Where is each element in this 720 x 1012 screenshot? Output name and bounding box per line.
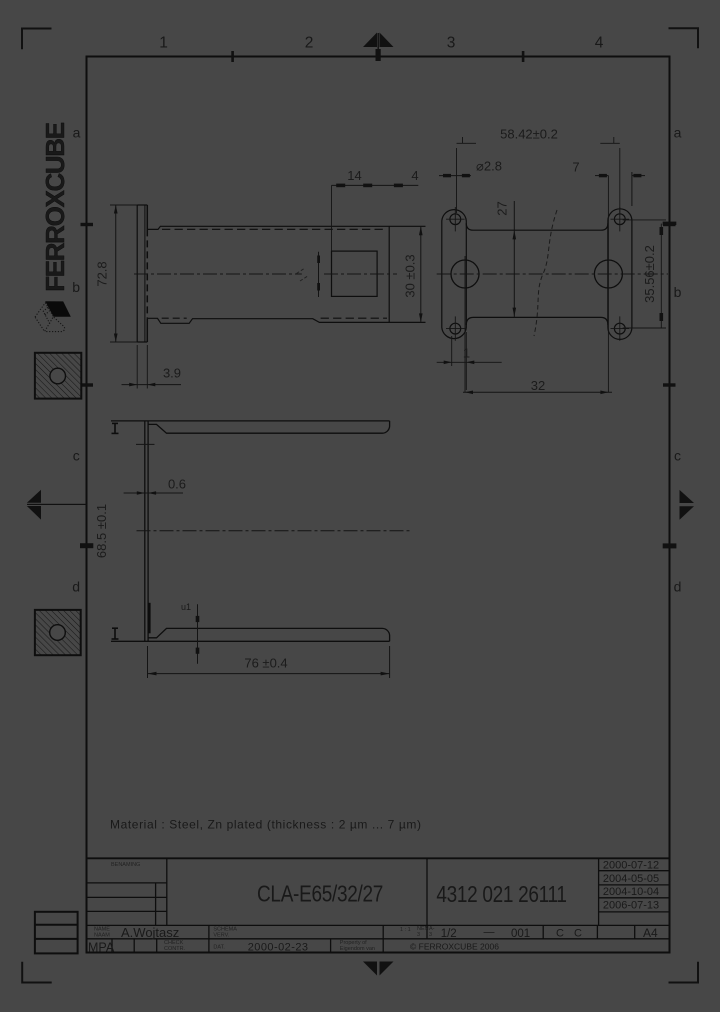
svg-text:A4: A4 <box>643 926 658 940</box>
svg-text:1: 1 <box>159 35 168 52</box>
svg-text:2004-10-04: 2004-10-04 <box>603 886 659 898</box>
svg-text:A.Wojtasz: A.Wojtasz <box>121 925 179 940</box>
svg-text:7: 7 <box>572 160 579 175</box>
svg-text:© FERROXCUBE 2006: © FERROXCUBE 2006 <box>410 942 499 952</box>
svg-text:76 ±0.4: 76 ±0.4 <box>244 656 287 671</box>
svg-text:2: 2 <box>305 35 314 52</box>
svg-text:CLA-E65/32/27: CLA-E65/32/27 <box>257 882 383 907</box>
svg-text:35.56±0.2: 35.56±0.2 <box>642 245 657 303</box>
svg-text:001: 001 <box>511 928 530 940</box>
svg-text:BENAMING: BENAMING <box>111 862 140 868</box>
svg-text:4: 4 <box>595 35 604 52</box>
svg-text:VERV.: VERV. <box>213 933 229 939</box>
svg-text:d: d <box>674 579 682 595</box>
svg-text:30 ±0.3: 30 ±0.3 <box>403 254 418 297</box>
svg-text:u1: u1 <box>181 602 191 612</box>
svg-text:C C: C C <box>556 928 585 940</box>
svg-text:4312 021 26111: 4312 021 26111 <box>436 882 566 907</box>
svg-text:c: c <box>73 448 80 464</box>
svg-text:a: a <box>674 125 682 141</box>
svg-text:0.6: 0.6 <box>168 477 186 492</box>
svg-text:4: 4 <box>411 168 418 183</box>
svg-text:68.5 ±0.1: 68.5 ±0.1 <box>94 504 109 558</box>
svg-text:2006-07-13: 2006-07-13 <box>603 900 659 912</box>
svg-text:⌀2.8: ⌀2.8 <box>476 159 502 174</box>
svg-text:27: 27 <box>495 201 510 215</box>
svg-text:2004-05-05: 2004-05-05 <box>603 873 659 885</box>
svg-text:—: — <box>484 927 495 939</box>
svg-text:Eigendom van: Eigendom van <box>340 946 375 952</box>
svg-text:a: a <box>73 125 81 141</box>
svg-text:32: 32 <box>531 378 545 393</box>
svg-text:2000-02-23: 2000-02-23 <box>248 942 309 954</box>
svg-text:1 : 1: 1 : 1 <box>400 927 411 933</box>
svg-text:3: 3 <box>429 932 432 938</box>
svg-text:2000-07-12: 2000-07-12 <box>603 860 659 872</box>
svg-text:d: d <box>72 579 80 595</box>
svg-text:MPA: MPA <box>88 940 115 954</box>
svg-text:14: 14 <box>347 168 361 183</box>
svg-text:c: c <box>674 448 681 464</box>
svg-text:1/2: 1/2 <box>441 928 457 940</box>
svg-text:CONTR.: CONTR. <box>164 946 186 952</box>
svg-text:b: b <box>72 279 80 295</box>
svg-text:Material : Steel, Zn plated (t: Material : Steel, Zn plated (thickness :… <box>110 818 422 832</box>
svg-text:1: 1 <box>463 346 470 361</box>
svg-text:72.8: 72.8 <box>95 261 110 286</box>
svg-text:3.9: 3.9 <box>163 366 181 381</box>
svg-text:NAAM: NAAM <box>94 933 110 939</box>
svg-text:DAT.: DAT. <box>213 945 225 951</box>
svg-text:3: 3 <box>417 932 420 938</box>
svg-text:b: b <box>674 284 682 300</box>
svg-text:3: 3 <box>447 35 456 52</box>
svg-text:58.42±0.2: 58.42±0.2 <box>500 127 558 142</box>
svg-text:FERROXCUBE: FERROXCUBE <box>40 122 70 292</box>
